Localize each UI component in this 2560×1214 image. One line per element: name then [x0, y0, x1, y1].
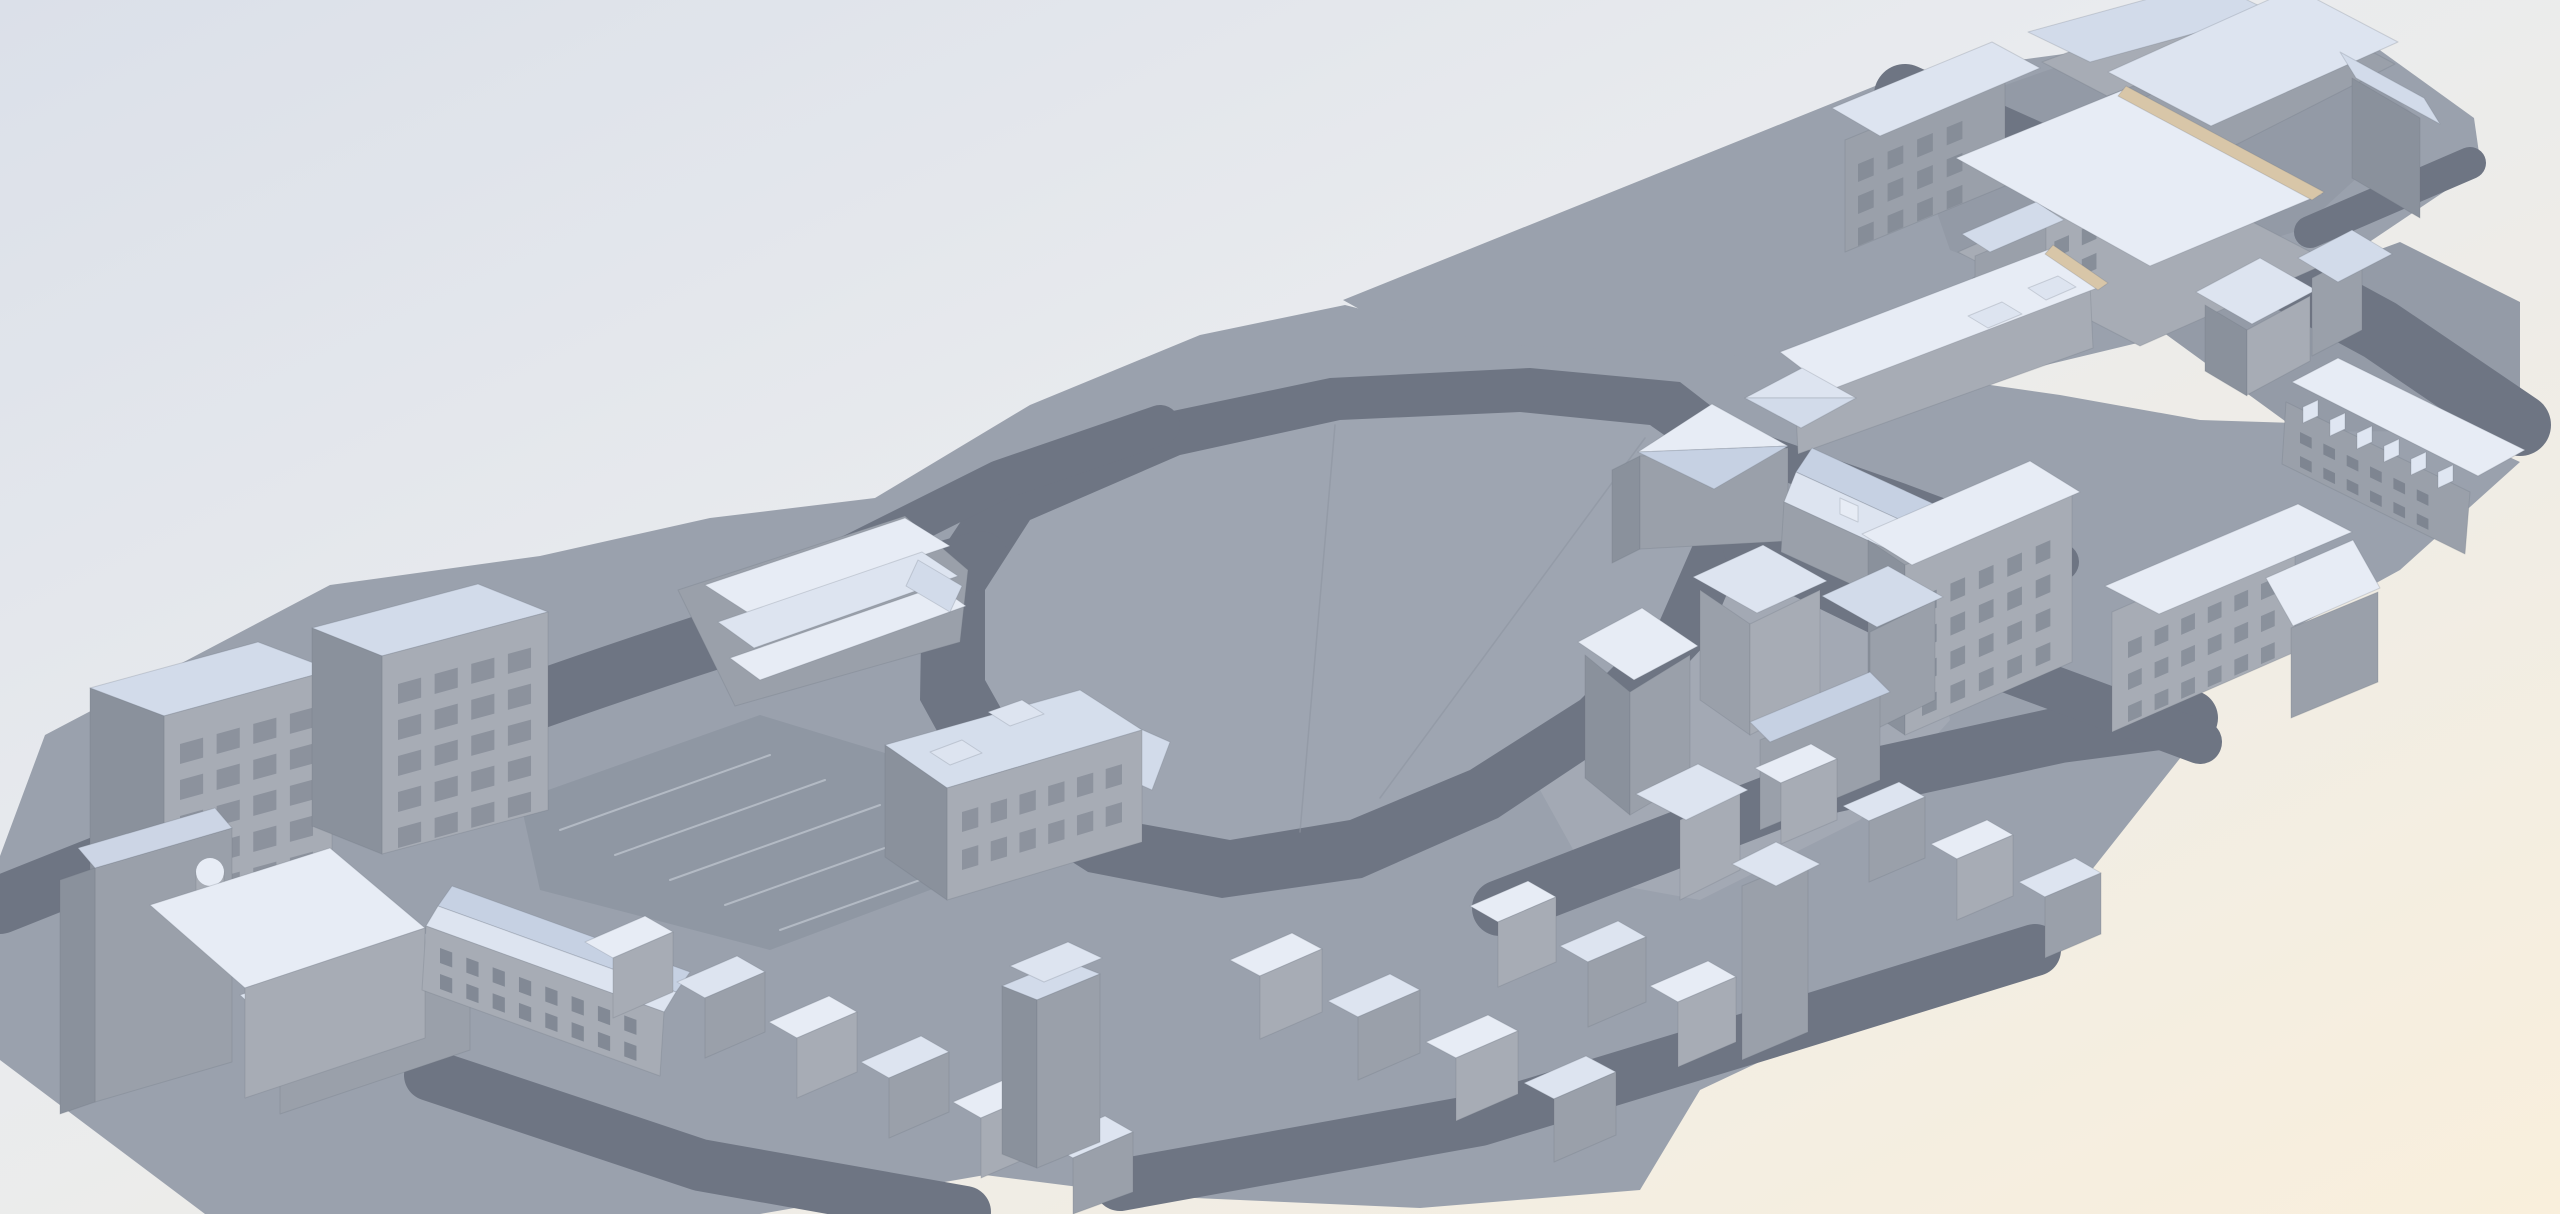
market-hall-side	[1002, 986, 1037, 1168]
slab-block2-side	[312, 628, 382, 854]
city-massing-3d-viewport[interactable]	[0, 0, 2560, 1214]
se-tall-house-front	[1742, 858, 1808, 1060]
model-viewer-stage	[0, 0, 2560, 1214]
scene-root	[0, 0, 2560, 1214]
pyramid-house-side	[1612, 456, 1640, 563]
market-hall-front	[1037, 974, 1100, 1168]
warehouse-cupola-dome	[196, 858, 224, 886]
warehouse-side	[60, 868, 95, 1114]
